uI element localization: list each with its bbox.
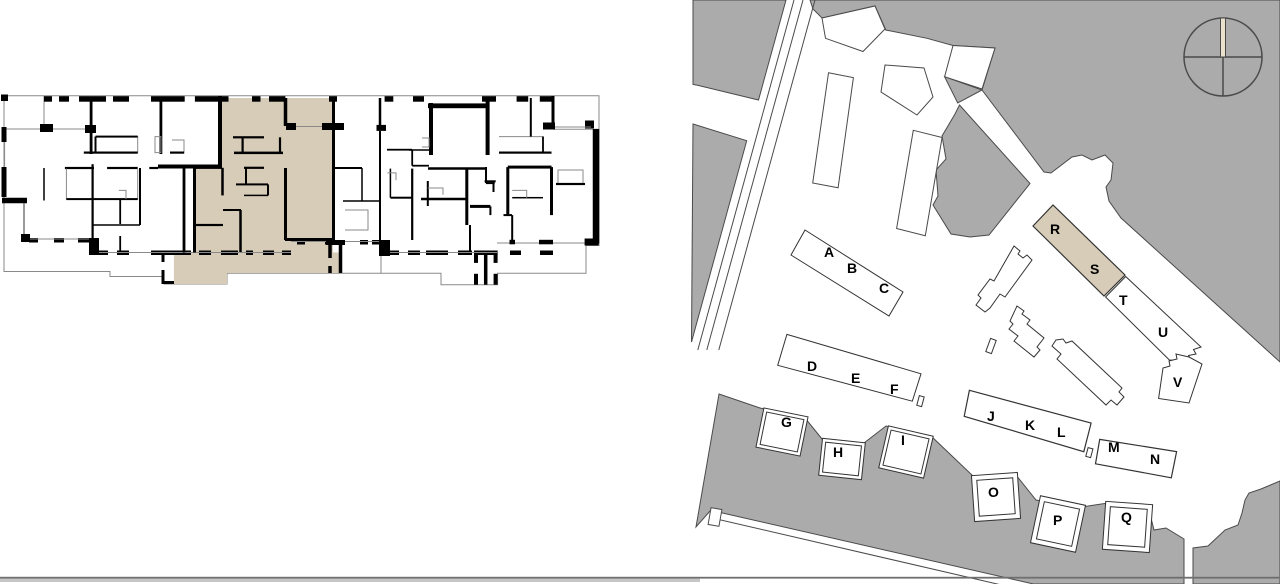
svg-text:S: S — [1090, 261, 1099, 277]
svg-text:K: K — [1025, 417, 1035, 433]
svg-text:R: R — [1050, 221, 1060, 237]
svg-text:P: P — [1053, 512, 1062, 528]
svg-text:H: H — [833, 444, 843, 460]
svg-text:N: N — [1150, 451, 1160, 467]
svg-text:O: O — [988, 484, 999, 500]
svg-text:I: I — [901, 432, 905, 448]
svg-text:B: B — [847, 260, 857, 276]
svg-text:C: C — [879, 280, 889, 296]
svg-text:Q: Q — [1121, 509, 1132, 525]
svg-text:V: V — [1173, 374, 1183, 390]
svg-text:T: T — [1119, 292, 1128, 308]
svg-text:L: L — [1057, 424, 1066, 440]
svg-text:J: J — [987, 408, 995, 424]
svg-text:G: G — [781, 414, 792, 430]
svg-text:F: F — [890, 381, 899, 397]
svg-text:A: A — [824, 244, 834, 260]
svg-text:E: E — [851, 370, 860, 386]
svg-text:U: U — [1158, 324, 1168, 340]
svg-text:D: D — [807, 358, 817, 374]
svg-text:M: M — [1108, 439, 1120, 455]
